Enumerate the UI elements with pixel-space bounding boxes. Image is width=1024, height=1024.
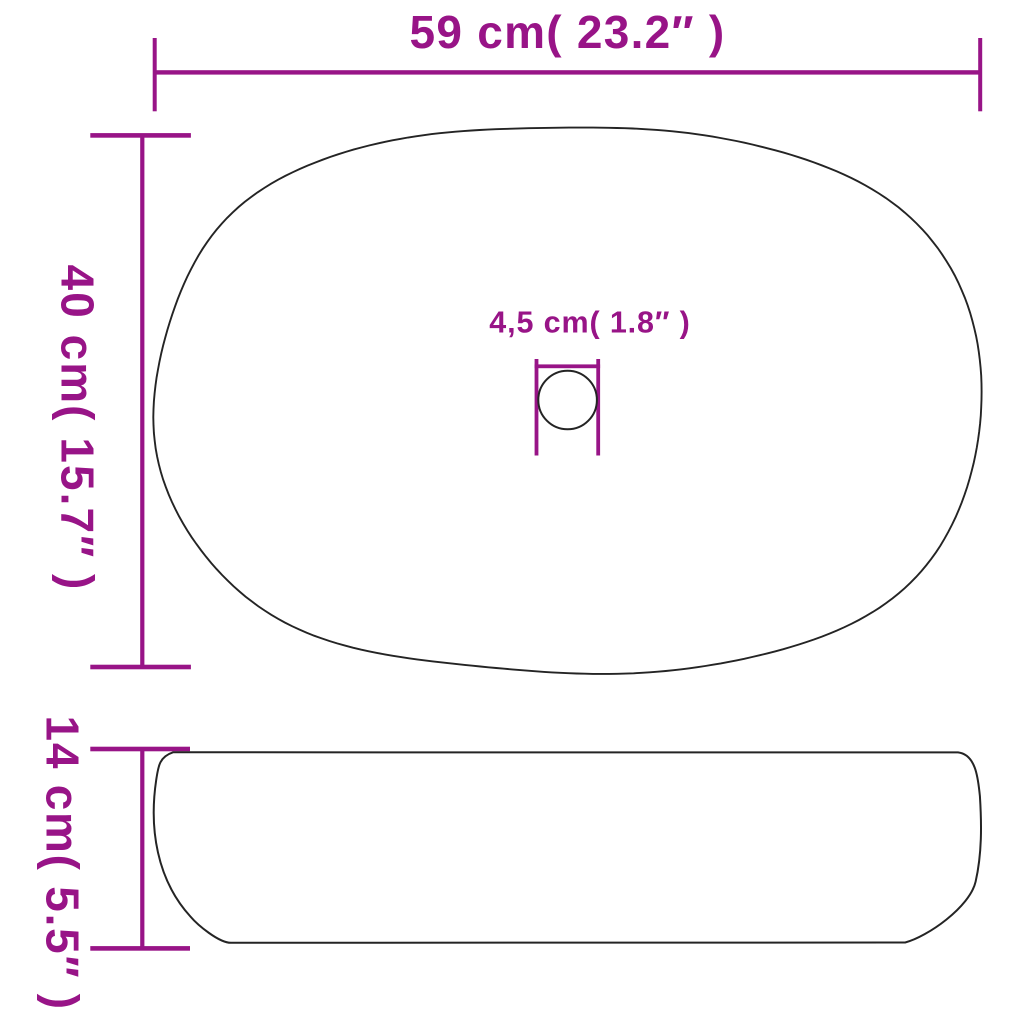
svg-text:59 cm( 23.2″ ): 59 cm( 23.2″ ) <box>410 6 726 58</box>
svg-text:40 cm( 15.7″ ): 40 cm( 15.7″ ) <box>52 265 104 592</box>
svg-text:4,5 cm( 1.8″ ): 4,5 cm( 1.8″ ) <box>489 306 690 340</box>
svg-text:14 cm( 5.5″ ): 14 cm( 5.5″ ) <box>37 716 89 1011</box>
